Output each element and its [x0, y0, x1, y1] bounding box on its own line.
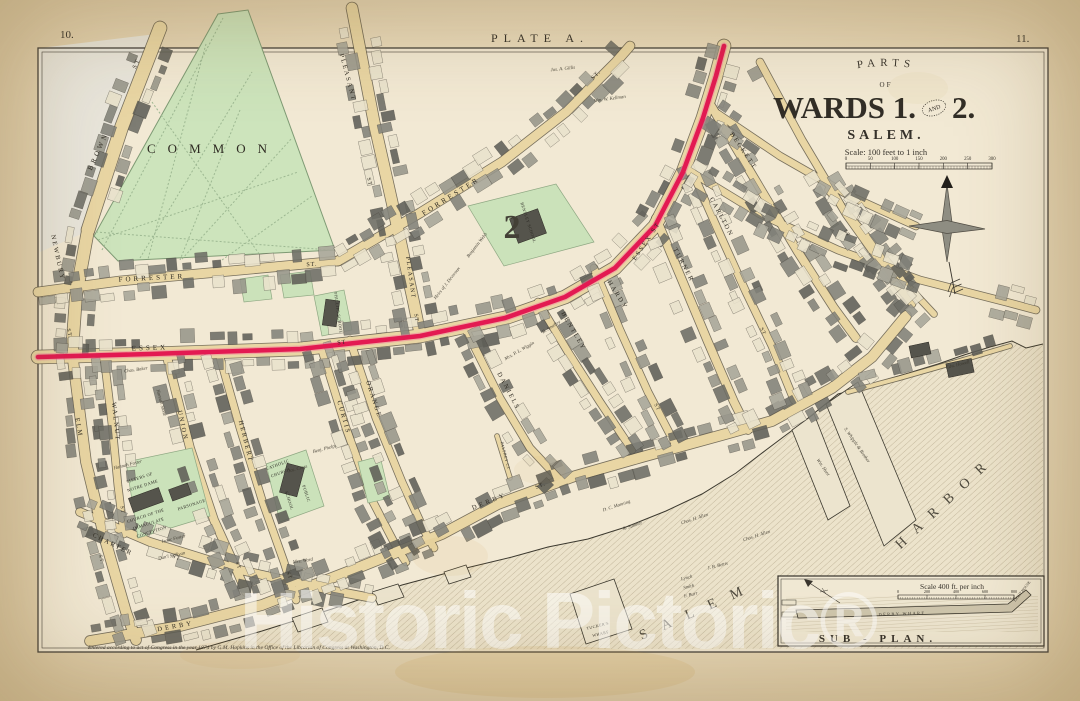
building — [212, 275, 225, 288]
building — [291, 273, 306, 284]
building — [99, 425, 113, 440]
building — [243, 333, 253, 340]
building — [393, 347, 404, 355]
street-label: ESSEX — [132, 343, 169, 352]
building — [292, 249, 302, 262]
building — [210, 332, 225, 340]
building — [288, 361, 299, 368]
scale-tick-label: 300 — [988, 157, 996, 162]
building — [105, 520, 117, 530]
building — [84, 290, 100, 302]
building — [212, 260, 221, 268]
building — [259, 253, 274, 262]
building — [91, 624, 101, 633]
building — [163, 608, 177, 624]
building — [371, 37, 382, 48]
building — [300, 332, 313, 342]
building — [361, 320, 371, 330]
subplan-tick-label: 0 — [897, 589, 899, 594]
building — [339, 27, 349, 39]
building — [392, 308, 407, 323]
building — [98, 403, 107, 415]
scale-tick-label: 50 — [868, 157, 873, 162]
building — [165, 629, 183, 644]
building — [99, 340, 112, 351]
building — [89, 376, 97, 385]
plate-label: PLATE A. — [491, 31, 589, 45]
building — [318, 246, 335, 261]
street-label: ST. — [306, 262, 317, 269]
building — [166, 258, 177, 271]
subplan-scale-label: Scale 400 ft. per inch — [920, 582, 984, 591]
atlas-page: 0501001502002503000200400600800COMMONBRO… — [0, 0, 1080, 701]
building — [496, 324, 511, 339]
building — [243, 359, 254, 366]
map-canvas: 0501001502002503000200400600800COMMONBRO… — [0, 0, 1080, 701]
building — [182, 262, 191, 269]
scale-tick-label: 250 — [964, 157, 972, 162]
building — [59, 371, 74, 381]
building — [448, 305, 458, 316]
building — [263, 276, 276, 291]
page-number-left: 10. — [60, 29, 74, 41]
building — [70, 288, 83, 302]
paper-stain — [514, 456, 566, 484]
building — [56, 343, 68, 354]
building — [277, 269, 291, 284]
building — [195, 252, 208, 263]
building — [56, 329, 66, 338]
building — [69, 271, 80, 281]
building — [272, 359, 285, 370]
scale-tick-label: 200 — [940, 157, 948, 162]
title-wards-right: 2. — [952, 90, 975, 125]
building — [424, 303, 437, 315]
building — [213, 359, 223, 370]
building — [98, 458, 106, 468]
page-number-right: 11. — [1016, 33, 1030, 45]
scale-tick-label: 150 — [915, 157, 923, 162]
building — [66, 415, 74, 426]
building — [151, 364, 167, 371]
scale-tick-label: 100 — [891, 157, 899, 162]
building — [347, 355, 362, 365]
building — [343, 321, 360, 335]
watermark: Historic Pictoric® — [240, 576, 878, 665]
building — [440, 337, 450, 347]
building — [101, 360, 112, 372]
ward-number: 2 — [504, 209, 521, 246]
building — [100, 293, 115, 302]
building — [258, 560, 270, 571]
building — [120, 614, 130, 626]
street-label: ST — [119, 506, 125, 514]
building — [54, 313, 66, 322]
building — [369, 65, 383, 80]
building — [115, 339, 126, 346]
building — [80, 397, 94, 409]
building — [244, 254, 260, 267]
building — [228, 253, 245, 264]
title-wards-left: WARDS 1. — [773, 90, 916, 125]
building — [180, 328, 195, 342]
building — [122, 440, 132, 450]
building — [376, 325, 387, 333]
building — [321, 265, 336, 277]
title-city: SALEM. — [847, 128, 924, 143]
street-label: ST — [337, 340, 347, 347]
building — [56, 293, 69, 304]
building — [137, 282, 150, 291]
building — [98, 266, 110, 279]
building — [107, 490, 114, 500]
building — [87, 314, 95, 326]
street-label: COMMON — [147, 141, 279, 156]
building — [65, 444, 76, 458]
building — [72, 368, 81, 379]
building — [66, 244, 77, 256]
building — [232, 279, 246, 294]
building — [101, 440, 110, 455]
building — [91, 357, 101, 372]
building — [84, 268, 94, 277]
building — [151, 285, 167, 299]
building — [305, 269, 323, 283]
building — [228, 332, 238, 345]
paper-stain — [412, 536, 488, 576]
street-label: ST — [412, 313, 419, 322]
title-scale-label: Scale: 100 feet to 1 inch — [845, 147, 928, 157]
building — [377, 347, 391, 360]
building — [112, 369, 123, 386]
building — [271, 330, 283, 339]
building — [124, 290, 136, 300]
subplan-tick-label: 800 — [1011, 589, 1017, 594]
building — [95, 390, 104, 401]
building — [287, 331, 298, 343]
building — [119, 259, 134, 270]
title-of: OF — [880, 81, 893, 89]
building — [257, 357, 270, 366]
building — [361, 154, 377, 170]
